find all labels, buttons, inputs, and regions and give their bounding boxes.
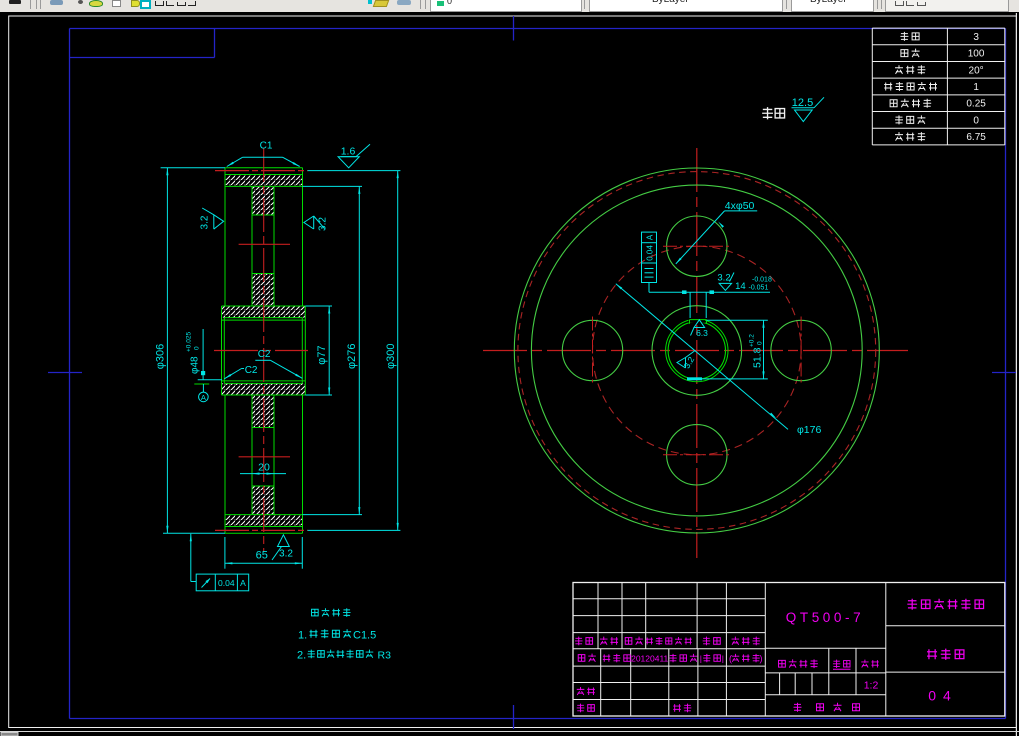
svg-text:φ176: φ176 <box>797 424 821 436</box>
svg-text:0.04: 0.04 <box>646 245 655 261</box>
svg-text:φ48: φ48 <box>190 356 201 374</box>
svg-text:20120411: 20120411 <box>631 654 668 664</box>
svg-text:20°: 20° <box>969 65 984 76</box>
svg-text:R3: R3 <box>378 650 392 662</box>
svg-text:0: 0 <box>973 115 979 126</box>
svg-text:2.: 2. <box>297 650 306 662</box>
svg-text:0: 0 <box>194 346 201 350</box>
svg-text:|: | <box>722 654 724 664</box>
svg-text:3.2: 3.2 <box>318 217 329 231</box>
svg-text:1: 1 <box>973 82 979 93</box>
svg-text:3.2: 3.2 <box>717 273 730 284</box>
svg-text:A: A <box>240 578 246 588</box>
svg-text:+0.2: +0.2 <box>749 334 756 347</box>
svg-text:A: A <box>645 234 654 240</box>
svg-text:100: 100 <box>968 49 985 60</box>
svg-text:04: 04 <box>928 687 958 703</box>
svg-text:4xφ50: 4xφ50 <box>725 200 755 212</box>
svg-text:φ306: φ306 <box>154 344 166 370</box>
svg-text:(: ( <box>729 654 732 664</box>
svg-text:+0.025: +0.025 <box>186 332 193 352</box>
svg-text:): ) <box>760 654 763 664</box>
svg-text:1:2: 1:2 <box>864 679 879 691</box>
svg-text:C1.5: C1.5 <box>353 629 376 641</box>
svg-text:C2: C2 <box>258 349 271 360</box>
svg-text:0.04: 0.04 <box>218 578 235 588</box>
svg-text:|: | <box>700 654 702 664</box>
svg-text:A: A <box>201 393 206 402</box>
svg-text:3.2: 3.2 <box>279 549 293 560</box>
svg-text:-0.051: -0.051 <box>749 285 769 292</box>
svg-text:-0.018: -0.018 <box>752 277 772 284</box>
svg-text:QT500-7: QT500-7 <box>786 610 864 625</box>
svg-text:1.: 1. <box>298 629 307 641</box>
svg-text:3: 3 <box>973 32 979 43</box>
svg-text:0: 0 <box>757 341 764 345</box>
svg-text:6.3: 6.3 <box>696 328 708 338</box>
svg-text:C2: C2 <box>245 365 258 376</box>
svg-text:3.2: 3.2 <box>200 215 211 229</box>
svg-text:6.75: 6.75 <box>966 132 986 143</box>
svg-text:20: 20 <box>258 462 270 474</box>
svg-text:φ77: φ77 <box>316 345 328 364</box>
svg-text:65: 65 <box>256 550 268 562</box>
svg-text:φ276: φ276 <box>346 343 358 369</box>
svg-text:φ300: φ300 <box>385 343 397 369</box>
svg-text:0.25: 0.25 <box>966 99 986 110</box>
svg-text:C1: C1 <box>260 141 273 152</box>
svg-text:14: 14 <box>735 281 746 292</box>
svg-text:1.6: 1.6 <box>341 145 356 157</box>
svg-text:51.8: 51.8 <box>752 347 764 368</box>
svg-text:12.5: 12.5 <box>792 97 813 109</box>
